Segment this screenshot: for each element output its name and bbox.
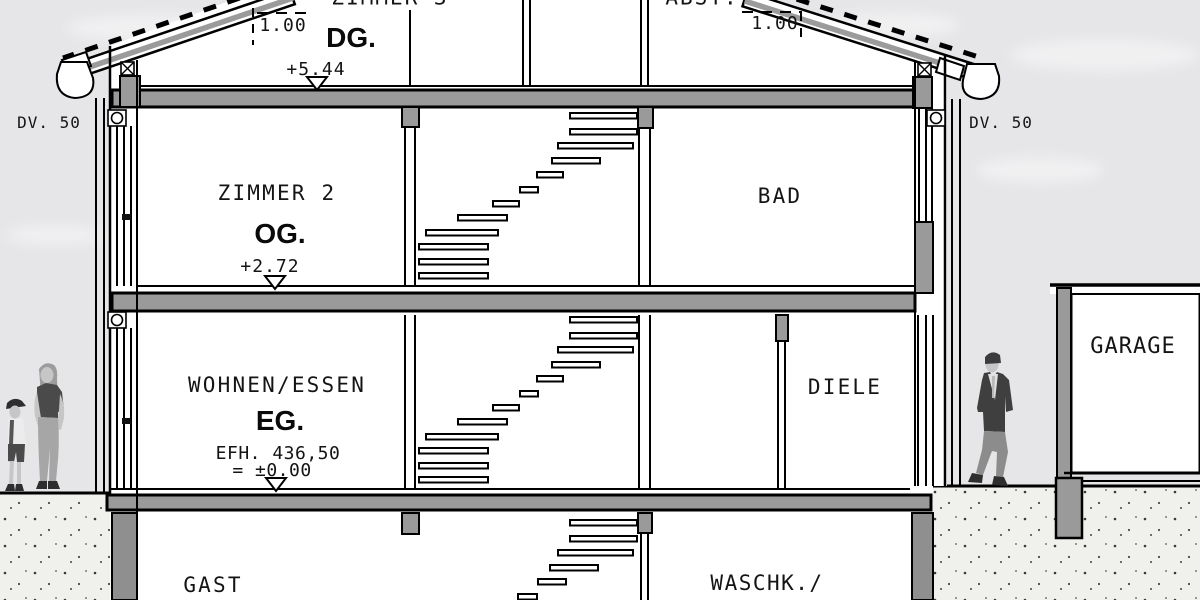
lintel-og-right	[638, 107, 653, 128]
room-label-waschk: WASCHK./	[710, 571, 823, 595]
stair-tread	[570, 333, 637, 339]
purlin-anchor-left	[121, 62, 134, 75]
level-label-dg: +5.44	[286, 59, 345, 80]
stair-tread	[458, 419, 507, 425]
stair-tread	[538, 579, 566, 585]
roller-box-left-eg	[108, 312, 126, 328]
basement-wall-left	[112, 513, 137, 600]
stair-tread	[537, 172, 563, 178]
room-label-gast: GAST	[183, 573, 242, 597]
architectural-section-screenshot: ZIMMER 3 ABST. 1.00 1.00 DG. +5.44 DV. 5…	[0, 0, 1200, 600]
garage-footing	[1056, 478, 1082, 538]
stair-tread	[570, 129, 637, 135]
purlin-anchor-right	[918, 63, 931, 76]
dim-eaves-right: DV. 50	[969, 113, 1033, 132]
stair-tread	[552, 362, 600, 368]
garage-interior	[1071, 293, 1200, 473]
level-label-eg-zero: = ±0.00	[232, 460, 311, 481]
dim-knee-right: 1.00	[751, 13, 798, 34]
lintel-kg-left	[402, 513, 419, 534]
stair-tread	[570, 520, 637, 526]
stair-tread	[558, 143, 633, 149]
lintel-og-left	[402, 107, 419, 127]
stair-tread	[493, 405, 519, 411]
stair-tread	[426, 434, 498, 440]
stair-tread	[520, 187, 538, 193]
stair-tread	[419, 244, 488, 250]
gutter-left	[57, 62, 94, 98]
stair-tread	[520, 391, 538, 397]
stair-tread	[558, 347, 633, 353]
stair-tread	[558, 550, 633, 556]
garage-roof-band	[1050, 286, 1200, 294]
stair-tread	[550, 565, 598, 571]
stair-tread	[493, 201, 519, 207]
basement-wall-right	[912, 513, 933, 600]
window-handle-og	[122, 214, 131, 220]
floor-label-og: OG.	[254, 218, 305, 249]
dim-eaves-left: DV. 50	[17, 113, 81, 132]
room-label-zimmer3: ZIMMER 3	[331, 0, 448, 10]
stair-tread	[419, 273, 488, 279]
earth-left	[0, 494, 112, 600]
floor-label-eg: EG.	[256, 405, 304, 436]
stair-tread	[426, 230, 498, 236]
room-label-abst: ABST.	[665, 0, 738, 10]
stair-tread	[552, 158, 600, 164]
room-label-garage: GARAGE	[1090, 334, 1175, 359]
eg-floor-slab	[107, 495, 931, 510]
garage-left-wall	[1057, 288, 1071, 478]
stair-tread	[537, 376, 563, 382]
stair-tread	[458, 215, 507, 221]
gutter-right	[963, 64, 1000, 99]
stair-tread	[570, 317, 637, 323]
stair-tread	[518, 594, 537, 600]
stair-tread	[570, 113, 637, 119]
lintel-kg-right	[638, 513, 652, 533]
dim-knee-left: 1.00	[259, 15, 306, 36]
room-label-diele: DIELE	[808, 375, 882, 399]
roller-box-left-og	[108, 110, 126, 126]
stair-tread	[419, 259, 488, 265]
window-handle-eg	[122, 418, 131, 424]
room-label-zimmer2: ZIMMER 2	[218, 181, 337, 205]
floor-label-dg: DG.	[326, 22, 376, 53]
og-floor-slab	[112, 293, 915, 311]
lintel-eg-hall	[776, 315, 788, 341]
stair-tread	[419, 477, 488, 483]
stair-tread	[419, 463, 488, 469]
building-section-drawing: ZIMMER 3 ABST. 1.00 1.00 DG. +5.44 DV. 5…	[0, 0, 1200, 600]
stair-tread	[570, 536, 637, 542]
stair-tread	[419, 448, 488, 454]
room-label-wohnen-essen: WOHNEN/ESSEN	[188, 373, 366, 397]
room-label-bad: BAD	[758, 184, 803, 208]
level-label-og: +2.72	[240, 256, 299, 277]
dg-floor-slab	[112, 90, 915, 107]
parapet-right-og	[915, 222, 933, 293]
roller-box-right-og	[927, 110, 945, 126]
